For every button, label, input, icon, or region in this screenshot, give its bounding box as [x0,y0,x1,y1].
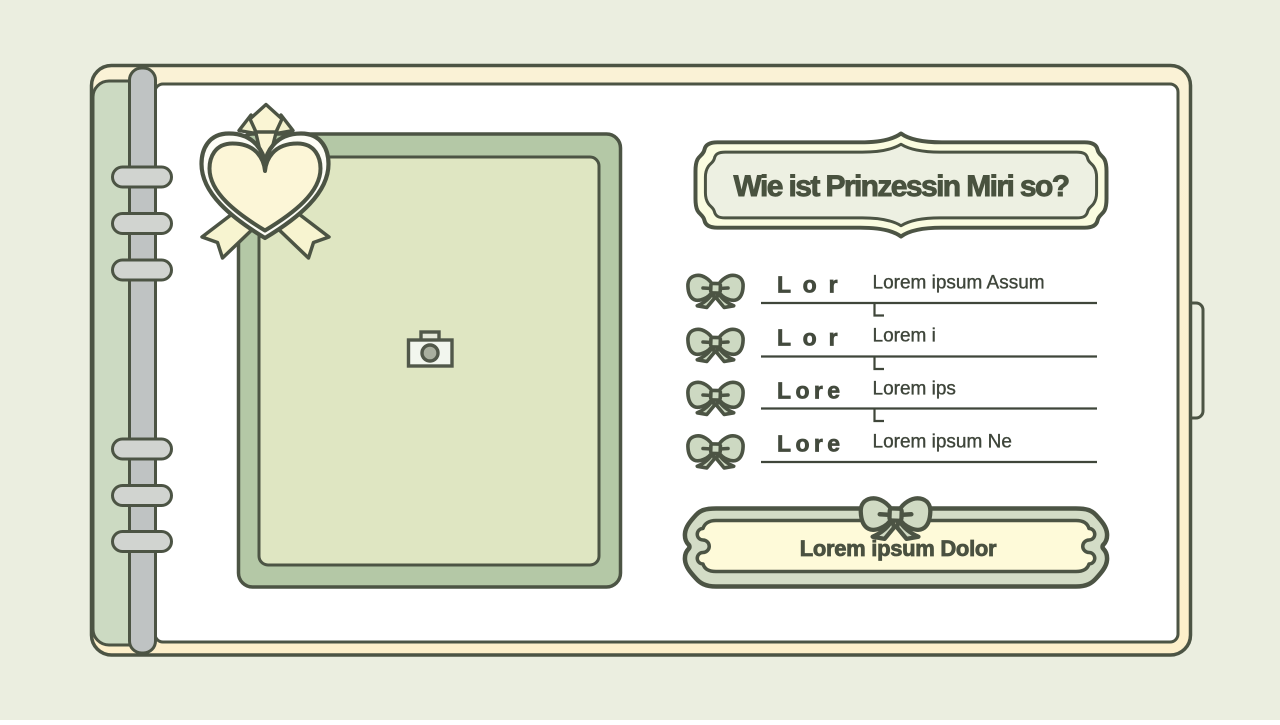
svg-text:Lorem ipsum Ne: Lorem ipsum Ne [873,432,1012,453]
svg-text:Lore: Lore [777,378,844,404]
svg-text:L o r: L o r [777,325,840,351]
svg-text:Lorem i: Lorem i [873,326,936,347]
svg-text:L o r: L o r [777,272,840,298]
svg-text:Lorem ipsum Assum: Lorem ipsum Assum [873,273,1045,294]
svg-text:Lorem ips: Lorem ips [873,379,956,400]
svg-text:Lorem ipsum Dolor: Lorem ipsum Dolor [800,536,997,561]
svg-text:Wie ist Prinzessin Miri so?: Wie ist Prinzessin Miri so? [734,170,1069,203]
svg-text:Lore: Lore [777,431,844,457]
